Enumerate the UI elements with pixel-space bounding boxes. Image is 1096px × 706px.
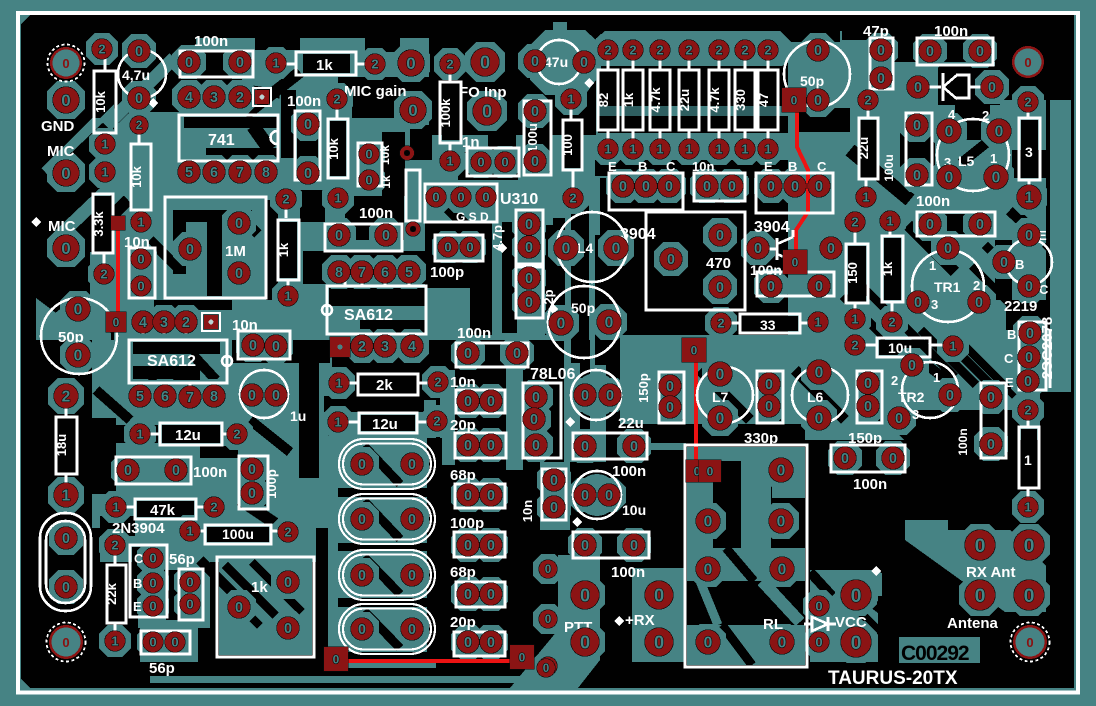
svg-text:150p: 150p (848, 430, 882, 447)
svg-text:0: 0 (284, 621, 292, 637)
svg-text:10n: 10n (520, 500, 535, 522)
svg-text:0: 0 (987, 437, 995, 453)
svg-text:0: 0 (532, 438, 540, 454)
svg-text:0: 0 (765, 377, 773, 393)
svg-text:0: 0 (767, 279, 775, 295)
svg-text:0: 0 (408, 101, 417, 120)
svg-text:8: 8 (262, 165, 270, 181)
svg-text:2: 2 (741, 43, 748, 58)
svg-text:C: C (817, 159, 827, 174)
svg-text:0: 0 (778, 562, 787, 579)
svg-text:0: 0 (135, 91, 143, 107)
svg-text:2: 2 (284, 525, 291, 540)
svg-text:0: 0 (248, 388, 256, 404)
svg-text:1: 1 (101, 137, 108, 152)
svg-text:0: 0 (889, 451, 897, 467)
svg-text:0: 0 (186, 575, 193, 590)
svg-text:0: 0 (754, 241, 762, 257)
svg-text:1: 1 (715, 142, 722, 157)
svg-text:1: 1 (764, 142, 771, 157)
svg-text:0: 0 (580, 633, 590, 653)
svg-text:0: 0 (877, 71, 885, 87)
svg-text:0: 0 (124, 463, 132, 479)
svg-text:4: 4 (139, 315, 147, 331)
svg-text:0: 0 (525, 295, 533, 311)
svg-text:10k: 10k (129, 165, 144, 187)
svg-text:5: 5 (405, 265, 413, 281)
svg-text:0: 0 (975, 585, 986, 607)
svg-text:1: 1 (1025, 190, 1034, 207)
svg-text:0: 0 (704, 562, 713, 579)
svg-text:20p: 20p (450, 417, 476, 434)
svg-text:100u: 100u (222, 526, 254, 542)
svg-text:0: 0 (557, 316, 566, 333)
svg-text:C00292: C00292 (901, 642, 969, 665)
svg-text:0: 0 (284, 575, 292, 591)
svg-text:0: 0 (480, 53, 490, 73)
svg-text:47p: 47p (863, 23, 889, 40)
svg-text:10n: 10n (692, 159, 714, 174)
svg-text:1: 1 (862, 190, 869, 205)
svg-text:12u: 12u (372, 416, 398, 433)
svg-text:0: 0 (851, 585, 862, 607)
svg-text:L4: L4 (577, 240, 594, 256)
svg-text:B: B (1015, 257, 1024, 272)
svg-text:0: 0 (791, 94, 798, 108)
svg-text:0: 0 (976, 217, 984, 233)
svg-text:0: 0 (272, 388, 280, 404)
svg-text:0: 0 (815, 365, 824, 382)
svg-text:100: 100 (560, 134, 575, 156)
svg-text:100n: 100n (457, 325, 491, 342)
svg-text:18u: 18u (54, 434, 69, 456)
svg-text:2: 2 (182, 315, 190, 331)
svg-text:22u: 22u (856, 137, 871, 159)
svg-text:C: C (1039, 282, 1049, 297)
svg-text:100k: 100k (438, 98, 453, 128)
svg-text:2: 2 (656, 43, 663, 58)
svg-text:0: 0 (186, 242, 194, 258)
svg-text:100n: 100n (611, 564, 645, 581)
svg-text:0: 0 (550, 500, 558, 516)
svg-text:0: 0 (703, 179, 711, 195)
svg-text:0: 0 (501, 155, 508, 170)
svg-text:0: 0 (464, 538, 472, 554)
svg-text:0: 0 (946, 388, 954, 404)
svg-text:1: 1 (137, 215, 144, 230)
svg-text:0: 0 (358, 622, 366, 638)
svg-text:2: 2 (717, 316, 724, 331)
svg-text:10k: 10k (93, 90, 108, 112)
svg-text:1: 1 (933, 370, 940, 385)
svg-text:0: 0 (992, 170, 1001, 187)
svg-text:0: 0 (531, 154, 539, 170)
svg-text:6: 6 (210, 165, 218, 181)
svg-text:U310: U310 (500, 191, 538, 208)
svg-text:0: 0 (1026, 326, 1034, 342)
svg-text:0: 0 (913, 118, 921, 134)
svg-text:1: 1 (629, 142, 636, 157)
svg-text:1: 1 (1024, 452, 1032, 468)
svg-text:0: 0 (827, 241, 835, 257)
svg-text:330p: 330p (744, 430, 778, 447)
svg-text:2: 2 (210, 500, 217, 515)
svg-text:0: 0 (605, 488, 613, 504)
svg-text:0: 0 (630, 439, 638, 455)
svg-text:0: 0 (464, 488, 472, 504)
svg-text:0: 0 (777, 514, 786, 531)
svg-text:B: B (1007, 327, 1016, 342)
svg-text:0: 0 (728, 179, 736, 195)
svg-text:0: 0 (172, 463, 180, 479)
svg-text:0: 0 (272, 339, 280, 355)
svg-text:0: 0 (605, 315, 614, 332)
svg-text:G S D: G S D (456, 210, 489, 224)
svg-text:1: 1 (604, 142, 611, 157)
svg-text:1: 1 (335, 376, 342, 391)
svg-text:0: 0 (61, 91, 70, 110)
svg-text:2: 2 (62, 389, 71, 406)
svg-text:E: E (608, 159, 617, 174)
svg-text:1: 1 (851, 312, 858, 327)
svg-text:0: 0 (612, 241, 621, 258)
svg-text:0: 0 (716, 280, 724, 296)
svg-text:12u: 12u (175, 427, 201, 444)
svg-text:0: 0 (464, 587, 472, 603)
svg-text:4.7k: 4.7k (648, 87, 663, 113)
svg-text:+RX: +RX (625, 612, 655, 629)
svg-text:47k: 47k (150, 502, 176, 519)
svg-text:470: 470 (706, 255, 731, 272)
svg-text:1: 1 (886, 214, 893, 229)
svg-text:0: 0 (358, 512, 366, 528)
svg-text:0: 0 (62, 580, 70, 596)
svg-text:0: 0 (304, 166, 312, 182)
svg-text:1k: 1k (621, 92, 636, 107)
svg-text:3: 3 (931, 297, 938, 312)
svg-text:1: 1 (284, 289, 291, 304)
svg-text:C: C (1004, 351, 1014, 366)
svg-text:2: 2 (446, 57, 453, 72)
svg-text:47u: 47u (544, 54, 568, 70)
svg-text:0: 0 (137, 252, 144, 267)
svg-text:0: 0 (619, 179, 627, 195)
svg-text:22k: 22k (104, 582, 119, 604)
svg-text:0: 0 (667, 252, 675, 268)
svg-text:50p: 50p (800, 73, 824, 89)
svg-text:4,7u: 4,7u (122, 67, 150, 83)
svg-text:0: 0 (654, 586, 664, 606)
svg-text:0: 0 (1024, 585, 1035, 607)
svg-text:0: 0 (654, 633, 664, 653)
svg-text:10n: 10n (124, 234, 150, 251)
svg-text:2: 2 (1024, 95, 1031, 110)
svg-text:0: 0 (562, 241, 571, 258)
svg-text:0: 0 (532, 390, 540, 406)
svg-text:8: 8 (210, 389, 218, 405)
svg-text:0: 0 (482, 102, 492, 122)
svg-text:C: C (666, 159, 676, 174)
svg-text:1k: 1k (276, 242, 291, 257)
svg-text:2: 2 (111, 538, 118, 553)
svg-text:0: 0 (792, 256, 799, 270)
svg-text:4.7k: 4.7k (707, 87, 722, 113)
svg-text:0: 0 (580, 55, 588, 71)
svg-text:0: 0 (716, 367, 725, 384)
svg-text:1: 1 (62, 488, 71, 505)
svg-text:0: 0 (814, 93, 822, 109)
svg-text:0: 0 (545, 613, 552, 626)
svg-text:150p: 150p (636, 373, 651, 403)
svg-text:1: 1 (186, 524, 193, 539)
svg-text:20p: 20p (450, 614, 476, 631)
svg-text:B: B (133, 576, 142, 591)
svg-text:0: 0 (530, 412, 538, 428)
svg-text:0: 0 (1000, 255, 1008, 271)
svg-text:0: 0 (525, 271, 533, 287)
svg-text:7: 7 (236, 165, 244, 181)
svg-text:0: 0 (988, 80, 996, 96)
svg-text:GND: GND (41, 118, 75, 135)
svg-text:2: 2 (358, 339, 366, 355)
svg-text:0: 0 (975, 295, 983, 311)
svg-text:0: 0 (791, 179, 799, 195)
svg-text:TR1: TR1 (934, 279, 961, 295)
svg-text:100u: 100u (882, 154, 896, 181)
svg-text:0: 0 (987, 390, 995, 406)
svg-text:0: 0 (406, 54, 415, 73)
svg-text:0: 0 (815, 411, 824, 428)
svg-text:0: 0 (487, 488, 495, 504)
svg-text:78L06: 78L06 (530, 366, 575, 383)
svg-text:0: 0 (464, 438, 472, 454)
svg-text:L7: L7 (712, 389, 729, 405)
svg-text:0: 0 (365, 173, 372, 188)
svg-text:4: 4 (185, 90, 193, 106)
svg-text:0: 0 (149, 635, 156, 650)
svg-text:100u: 100u (525, 123, 540, 153)
svg-text:0: 0 (944, 241, 952, 257)
svg-text:100n: 100n (287, 93, 321, 110)
svg-text:3: 3 (1025, 144, 1033, 160)
svg-text:150: 150 (845, 262, 860, 284)
svg-text:1: 1 (741, 142, 748, 157)
svg-text:0: 0 (545, 563, 552, 576)
svg-text:0: 0 (235, 600, 243, 616)
svg-text:0: 0 (186, 597, 193, 612)
svg-text:2: 2 (764, 43, 771, 58)
svg-text:0: 0 (914, 295, 922, 311)
svg-text:0: 0 (249, 338, 257, 354)
svg-text:2: 2 (629, 43, 636, 58)
svg-text:0: 0 (1025, 228, 1033, 244)
svg-text:68p: 68p (450, 564, 476, 581)
svg-text:TAURUS-20TX: TAURUS-20TX (828, 668, 958, 689)
svg-text:0: 0 (358, 568, 366, 584)
svg-text:0: 0 (976, 44, 984, 60)
svg-text:0: 0 (525, 217, 533, 233)
svg-text:82: 82 (596, 93, 611, 107)
svg-text:0: 0 (113, 316, 120, 330)
svg-text:0: 0 (550, 473, 558, 489)
svg-text:0: 0 (149, 576, 156, 591)
svg-text:0: 0 (691, 344, 698, 358)
svg-text:0: 0 (482, 190, 489, 205)
svg-text:0: 0 (149, 599, 156, 614)
svg-text:E: E (1005, 375, 1014, 390)
svg-text:0: 0 (531, 54, 539, 70)
svg-text:0: 0 (815, 179, 823, 195)
svg-text:0: 0 (171, 635, 178, 650)
svg-text:5: 5 (136, 389, 144, 405)
svg-text:0: 0 (814, 43, 822, 59)
svg-text:10k: 10k (378, 145, 392, 165)
svg-text:100n: 100n (956, 428, 970, 455)
svg-text:0: 0 (1024, 535, 1035, 557)
svg-text:0: 0 (487, 538, 495, 554)
svg-text:0: 0 (74, 348, 83, 365)
svg-text:0: 0 (235, 216, 243, 232)
svg-text:2: 2 (715, 43, 722, 58)
svg-text:0: 0 (895, 411, 903, 427)
svg-text:0: 0 (1026, 635, 1033, 650)
svg-text:0: 0 (841, 451, 849, 467)
svg-text:0: 0 (777, 463, 786, 480)
svg-text:2: 2 (888, 315, 895, 330)
svg-text:0: 0 (519, 651, 526, 665)
svg-text:0: 0 (248, 486, 256, 502)
svg-text:0: 0 (707, 465, 714, 479)
svg-text:0: 0 (62, 635, 69, 650)
svg-text:22u: 22u (618, 415, 644, 432)
svg-text:7: 7 (358, 265, 366, 281)
svg-text:2: 2 (569, 191, 576, 206)
svg-text:1: 1 (685, 142, 692, 157)
svg-text:0: 0 (926, 44, 934, 60)
svg-text:0: 0 (945, 124, 954, 141)
svg-text:2: 2 (982, 108, 989, 123)
svg-text:0: 0 (913, 168, 921, 184)
svg-text:2N3904: 2N3904 (112, 520, 165, 537)
svg-text:0: 0 (666, 400, 674, 416)
svg-text:7: 7 (186, 390, 194, 406)
svg-text:10n: 10n (232, 317, 258, 334)
svg-text:0: 0 (408, 568, 416, 584)
svg-text:0: 0 (606, 388, 614, 404)
svg-text:0: 0 (487, 635, 495, 651)
svg-text:0: 0 (358, 457, 366, 473)
svg-text:1: 1 (111, 634, 118, 649)
svg-text:B: B (788, 159, 797, 174)
svg-text:0: 0 (477, 155, 484, 170)
svg-text:100n: 100n (359, 205, 393, 222)
svg-text:0: 0 (464, 346, 472, 362)
svg-text:0: 0 (235, 266, 243, 282)
svg-text:2: 2 (851, 215, 858, 230)
svg-text:10u: 10u (888, 340, 912, 356)
svg-text:0: 0 (61, 239, 70, 258)
svg-text:2: 2 (236, 90, 244, 106)
svg-text:0: 0 (580, 586, 590, 606)
svg-text:100p: 100p (430, 264, 464, 281)
svg-text:6: 6 (381, 265, 389, 281)
svg-text:741: 741 (208, 132, 235, 149)
svg-text:0: 0 (581, 388, 589, 404)
svg-text:2: 2 (685, 43, 692, 58)
svg-text:2: 2 (136, 119, 143, 132)
svg-text:3: 3 (160, 315, 168, 331)
svg-text:SA612: SA612 (344, 307, 393, 324)
svg-text:2: 2 (233, 427, 240, 442)
svg-text:10u: 10u (622, 502, 646, 518)
svg-text:68p: 68p (450, 467, 476, 484)
svg-text:56p: 56p (169, 551, 195, 568)
svg-text:1: 1 (814, 315, 821, 330)
svg-text:E: E (133, 599, 142, 614)
svg-text:2p: 2p (541, 289, 556, 304)
svg-text:100n: 100n (194, 33, 228, 50)
svg-text:SA612: SA612 (147, 353, 196, 370)
svg-text:B: B (638, 159, 647, 174)
svg-text:0: 0 (1025, 350, 1033, 366)
svg-text:0: 0 (914, 80, 922, 96)
svg-text:0: 0 (1025, 279, 1033, 295)
svg-text:0: 0 (581, 488, 589, 504)
svg-text:0: 0 (62, 56, 69, 71)
svg-text:2: 2 (282, 192, 289, 207)
svg-text:MIC: MIC (48, 218, 76, 235)
svg-text:50p: 50p (571, 300, 595, 316)
svg-text:100n: 100n (853, 476, 887, 493)
svg-text:0: 0 (74, 302, 83, 319)
svg-text:100n: 100n (612, 463, 646, 480)
svg-text:1: 1 (990, 151, 997, 166)
svg-text:0: 0 (135, 44, 143, 60)
svg-text:8: 8 (335, 265, 343, 281)
svg-text:0: 0 (642, 179, 650, 195)
svg-text:0: 0 (851, 632, 862, 654)
svg-text:0: 0 (543, 662, 550, 675)
svg-text:2k: 2k (376, 377, 393, 394)
svg-text:2: 2 (891, 373, 898, 388)
svg-text:100n: 100n (934, 23, 968, 40)
svg-text:1: 1 (949, 339, 956, 354)
svg-text:1: 1 (656, 142, 663, 157)
svg-text:2: 2 (371, 57, 378, 72)
svg-text:0: 0 (61, 164, 70, 183)
svg-text:0: 0 (1024, 374, 1032, 390)
svg-text:2: 2 (604, 43, 611, 58)
svg-text:E: E (764, 159, 773, 174)
svg-text:0: 0 (765, 399, 773, 415)
svg-text:0: 0 (444, 240, 451, 255)
svg-text:0: 0 (466, 240, 473, 255)
svg-text:0: 0 (335, 228, 343, 244)
svg-text:1: 1 (334, 415, 341, 430)
svg-text:4: 4 (408, 339, 416, 355)
svg-text:0: 0 (304, 117, 312, 133)
svg-text:3904: 3904 (754, 219, 790, 236)
svg-text:1: 1 (1024, 500, 1031, 515)
svg-text:L5: L5 (958, 153, 975, 169)
svg-text:1: 1 (272, 56, 279, 71)
svg-text:0: 0 (248, 462, 256, 478)
svg-text:0: 0 (408, 622, 416, 638)
svg-text:0: 0 (778, 635, 787, 652)
svg-text:0: 0 (487, 394, 495, 410)
svg-text:0: 0 (333, 653, 340, 667)
svg-text:10k: 10k (326, 137, 341, 159)
